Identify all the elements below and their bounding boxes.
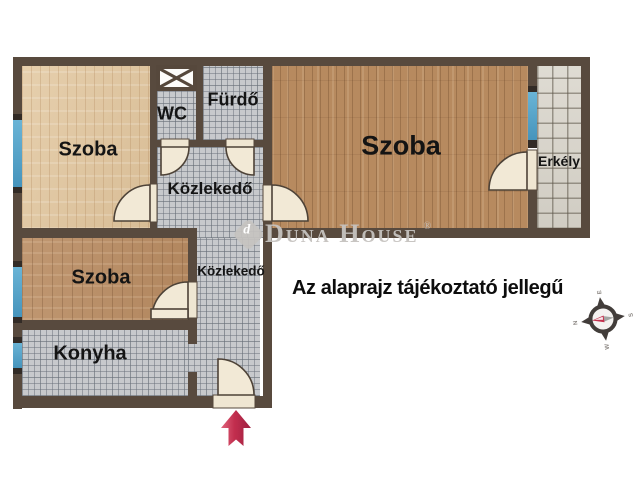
ventilation-shaft xyxy=(158,67,195,89)
compass-needle-north xyxy=(592,315,605,323)
wall-wc-furdo xyxy=(196,66,203,147)
compass-dial xyxy=(589,305,617,333)
window-szoba-lower xyxy=(13,267,22,317)
compass-spike-right xyxy=(611,311,625,322)
window-szoba-top-left xyxy=(13,120,22,187)
wall-hall-szoba-upper xyxy=(263,66,272,185)
room-label-wc: WC xyxy=(157,104,187,125)
door-leaf-szoba1 xyxy=(150,184,157,222)
room-label-szoba-lower: Szoba xyxy=(72,267,131,290)
room-label-kozlekedo-upper: Közlekedő xyxy=(167,179,252,199)
room-label-erkely: Erkély xyxy=(538,153,580,169)
compass-label-north: N xyxy=(573,320,580,325)
watermark: d Duna House ® xyxy=(237,221,431,247)
room-label-konyha: Konyha xyxy=(53,343,126,366)
wall-erkely-bottom xyxy=(528,190,537,229)
compass-label-south: S xyxy=(628,313,635,318)
window-cap-erkely-bottom xyxy=(528,140,537,148)
wall-wc-furdo-bottom xyxy=(189,140,226,147)
floor-plan: N E S W Szoba WC Fürdő Közlekedő Szoba E… xyxy=(0,0,640,480)
window-erkely xyxy=(528,92,537,140)
watermark-brand-text: Duna House xyxy=(265,221,419,247)
wall-wc-jamb-left xyxy=(157,140,162,147)
compass-label-east: E xyxy=(597,290,604,295)
wall-szoba2-hall-upper xyxy=(188,238,197,282)
room-label-furdo: Fürdő xyxy=(208,90,259,111)
wall-outer-bottom-right xyxy=(255,396,272,408)
wall-outer-bottom-left xyxy=(13,396,213,408)
duna-house-logo-icon: d xyxy=(232,218,265,251)
compass-label-west: W xyxy=(604,343,611,350)
window-konyha xyxy=(13,343,22,368)
wall-szoba1-hall-upper xyxy=(150,66,157,184)
wall-konyha-stub-bottom xyxy=(188,372,197,396)
compass-spike-bottom xyxy=(600,327,611,341)
compass-spike-left xyxy=(581,316,595,327)
room-label-kozlekedo-lower: Közlekedő xyxy=(197,264,265,279)
wall-szoba1-hall-lower xyxy=(150,221,157,229)
wall-outer-top xyxy=(13,57,590,66)
compass-spike-top xyxy=(595,297,606,311)
compass-needle-highlight xyxy=(594,317,603,321)
wall-furdo-jamb-right xyxy=(254,140,263,147)
door-leaf-erkely xyxy=(527,150,537,190)
entrance-arrow-icon xyxy=(221,410,251,446)
door-leaf-entrance xyxy=(213,395,255,408)
wall-outer-right xyxy=(581,57,590,238)
wall-mid-horizontal-left xyxy=(13,228,197,238)
room-kozlekedo-lower-floor xyxy=(188,238,260,396)
room-erkely-floor xyxy=(537,66,581,229)
room-label-szoba-top-left: Szoba xyxy=(59,139,118,162)
registered-trademark-symbol: ® xyxy=(424,221,432,232)
room-label-szoba-main: Szoba xyxy=(361,131,441,162)
wall-szoba2-konyha xyxy=(13,320,197,330)
compass-rose-icon: N E S W xyxy=(569,286,639,354)
door-leaf-szoba-main xyxy=(263,185,272,221)
window-cap xyxy=(13,187,22,193)
compass-needle-south xyxy=(603,314,615,321)
disclaimer-text: Az alaprajz tájékoztató jellegű xyxy=(292,277,563,300)
window-cap xyxy=(13,368,22,374)
wall-konyha-stub-top xyxy=(188,330,197,344)
window-cap xyxy=(13,317,22,323)
